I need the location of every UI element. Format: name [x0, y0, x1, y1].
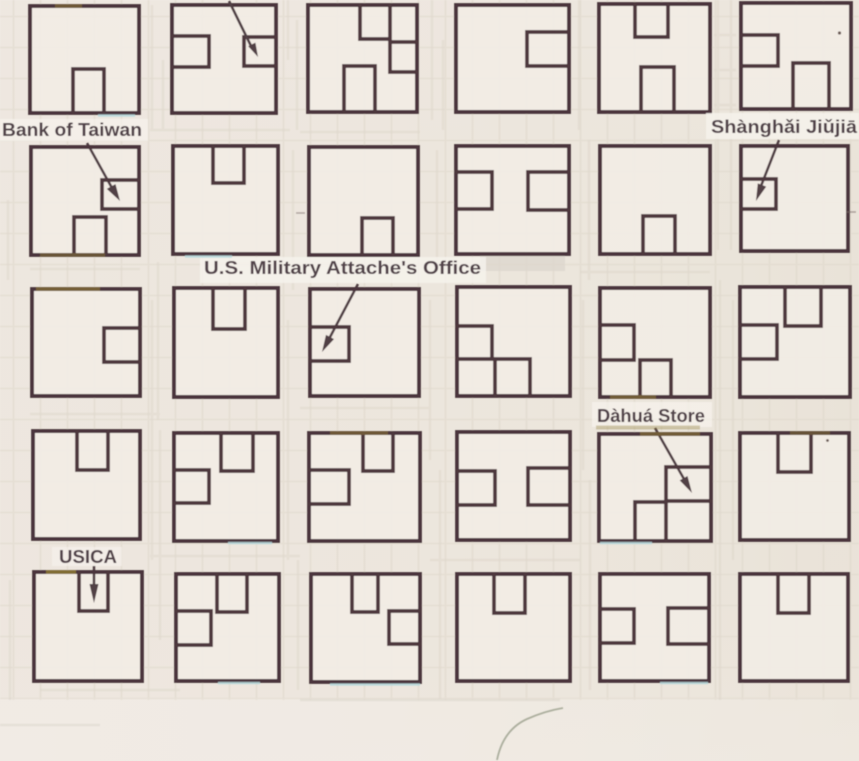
svg-text:USICA: USICA: [59, 547, 117, 567]
svg-text:Dàhuá Store: Dàhuá Store: [597, 406, 705, 426]
svg-text:Bank of Taiwan: Bank of Taiwan: [2, 120, 142, 140]
svg-text:U.S. Military Attache's Office: U.S. Military Attache's Office: [204, 258, 481, 278]
svg-text:Shànghǎi Jiǔjiā: Shànghǎi Jiǔjiā: [711, 117, 858, 137]
